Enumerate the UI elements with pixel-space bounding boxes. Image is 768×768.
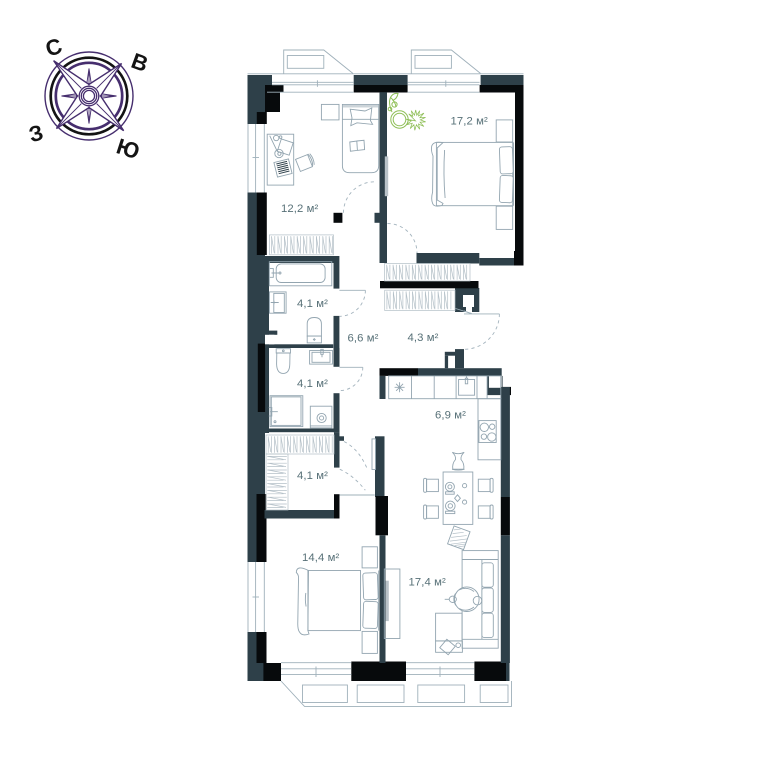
svg-text:6,6 м²: 6,6 м² [348,333,379,345]
svg-text:В: В [128,48,151,77]
svg-text:4,1 м²: 4,1 м² [297,378,328,390]
svg-text:4,3 м²: 4,3 м² [408,332,439,344]
svg-text:4,1 м²: 4,1 м² [297,298,328,310]
svg-text:6,9 м²: 6,9 м² [435,410,466,422]
svg-text:12,2 м²: 12,2 м² [281,203,318,215]
svg-text:С: С [42,33,65,62]
svg-text:4,1 м²: 4,1 м² [297,470,328,482]
svg-text:17,2 м²: 17,2 м² [451,116,488,128]
svg-text:14,4 м²: 14,4 м² [302,552,339,564]
svg-text:Ю: Ю [113,133,142,164]
svg-text:17,4 м²: 17,4 м² [409,577,446,589]
svg-text:З: З [26,120,46,148]
